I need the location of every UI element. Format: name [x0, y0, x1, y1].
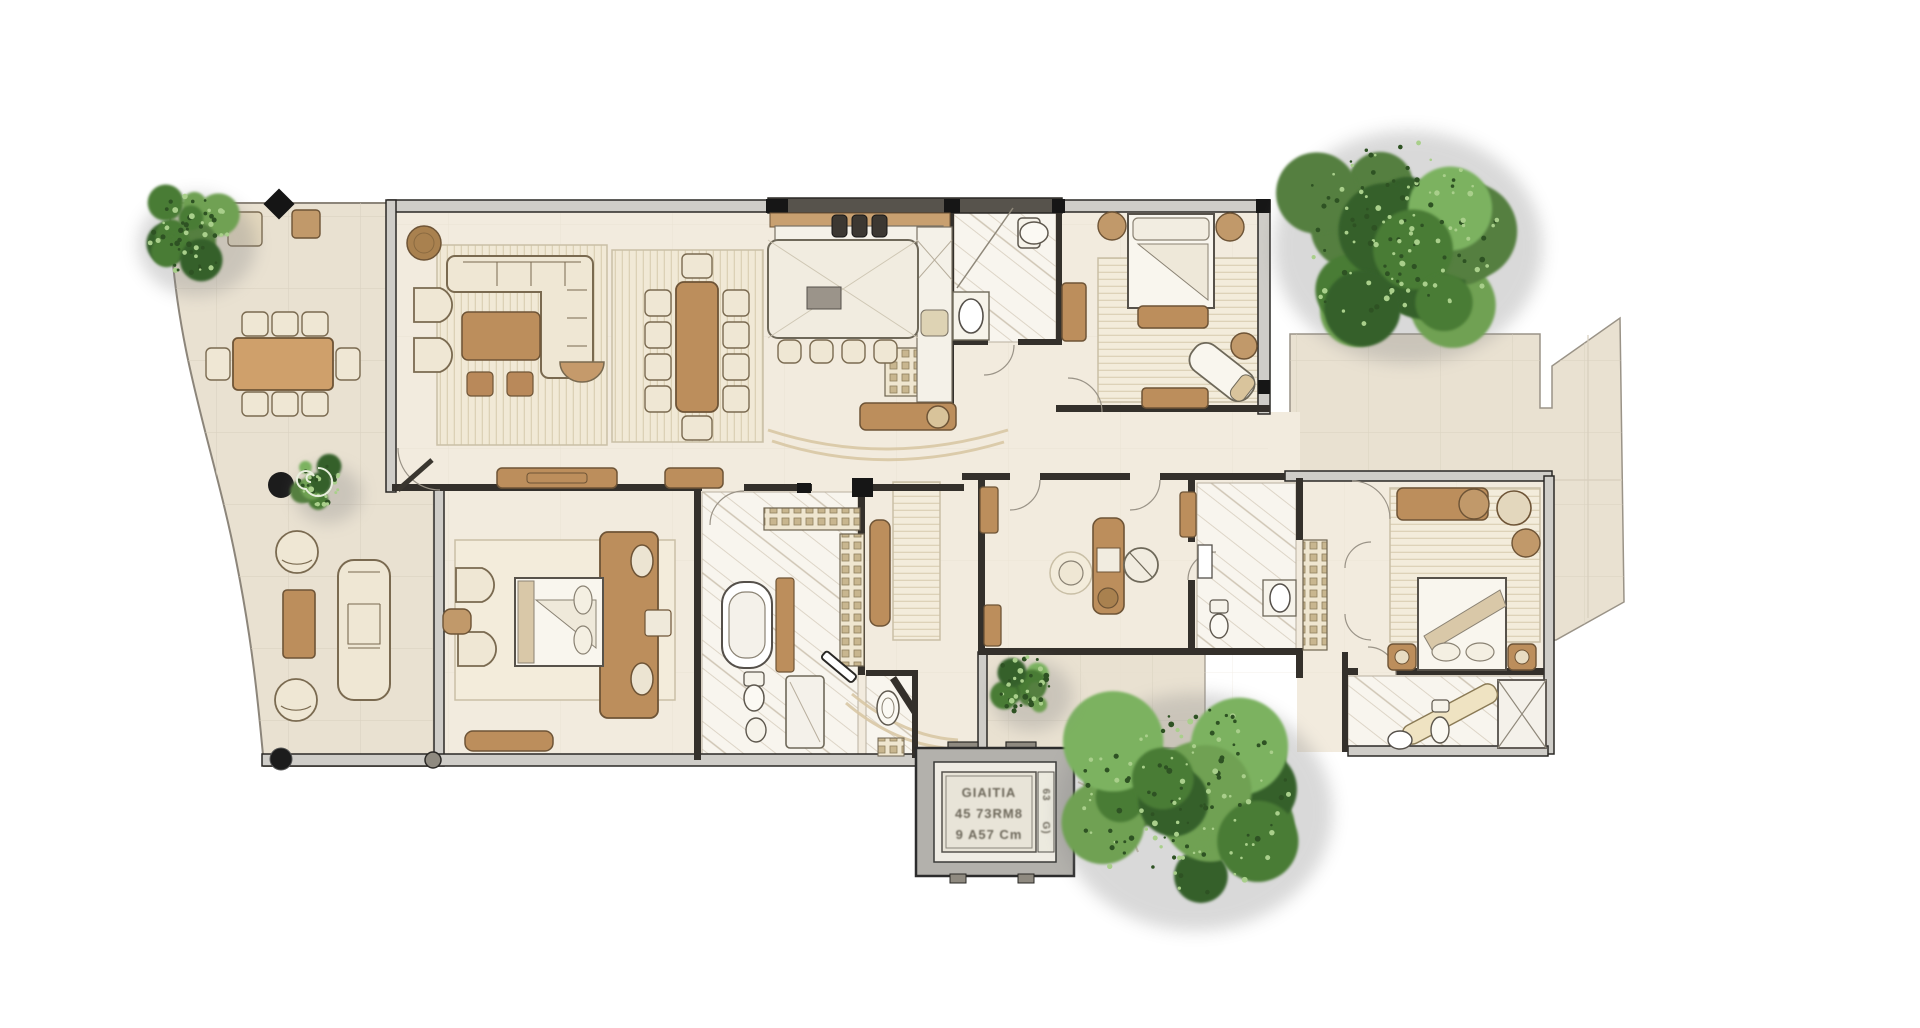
- wall-chunk-3: [1052, 199, 1065, 213]
- chair: [645, 354, 671, 380]
- foliage-dot: [1208, 709, 1211, 712]
- wall-top-kitchen: [768, 198, 1062, 213]
- burner: [872, 215, 887, 237]
- foliage-dot: [169, 199, 173, 203]
- elevator-foot-2: [1018, 874, 1034, 883]
- foliage-dot: [1284, 778, 1287, 781]
- foliage-dot: [1349, 272, 1352, 275]
- foliage-dot: [1442, 255, 1446, 259]
- foliage-dot: [1145, 734, 1148, 737]
- foliage-dot: [1321, 204, 1326, 209]
- chair: [723, 386, 749, 412]
- foliage-dot: [1257, 743, 1261, 747]
- chair: [272, 312, 298, 336]
- foliage-dot: [1350, 160, 1353, 163]
- console-tray: [645, 610, 671, 636]
- foliage-dot: [1114, 754, 1119, 759]
- pedestal-basin: [746, 718, 766, 742]
- foliage-dot: [215, 261, 218, 264]
- foliage-dot: [334, 491, 337, 494]
- foliage-blob: [1132, 748, 1194, 810]
- wall-master-bath-left: [694, 490, 701, 760]
- corner-post-round: [270, 748, 292, 770]
- foliage-dot: [199, 268, 201, 270]
- bed-bench: [1138, 306, 1208, 328]
- foliage-dot: [208, 222, 213, 227]
- foliage-dot: [1375, 205, 1381, 211]
- wardrobe: [1062, 283, 1086, 341]
- foliage-dot: [1164, 836, 1166, 838]
- foliage-dot: [1345, 206, 1349, 210]
- foliage-dot: [1158, 763, 1162, 767]
- pillow-1: [574, 586, 592, 614]
- foliage-dot: [213, 233, 218, 238]
- foliage-dot: [1332, 173, 1335, 176]
- foliage-dot: [1388, 215, 1392, 219]
- foliage-dot: [177, 238, 181, 242]
- foliage-dot: [1443, 174, 1446, 177]
- foliage-dot: [1361, 186, 1364, 189]
- outdoor-sofa: [338, 560, 390, 700]
- foliage-dot: [1022, 694, 1028, 700]
- foliage-dot: [1206, 789, 1211, 794]
- foliage-dot: [1452, 178, 1456, 182]
- foliage-dot: [1217, 775, 1222, 780]
- chair: [242, 392, 268, 416]
- coffee-table: [462, 312, 540, 360]
- rug-pouf: [1059, 561, 1083, 585]
- wall-powder-top: [866, 670, 918, 676]
- desk-blotter: [1097, 548, 1120, 572]
- foliage-dot: [1391, 278, 1393, 280]
- stool: [810, 340, 833, 363]
- foliage-dot: [1210, 731, 1215, 736]
- sideboard-1: [497, 468, 617, 488]
- chair: [723, 290, 749, 316]
- foliage-dot: [1013, 677, 1016, 680]
- foliage-dot: [322, 502, 327, 507]
- foliage-dot: [1192, 751, 1194, 753]
- ottoman-2: [507, 372, 533, 396]
- pouf: [1497, 491, 1531, 525]
- office-cabinet-2: [984, 605, 1001, 646]
- foliage-dot: [1147, 790, 1151, 794]
- foliage-dot: [1265, 855, 1270, 860]
- foliage-dot: [1323, 249, 1326, 252]
- foliage-dot: [336, 488, 339, 491]
- foliage-dot: [1153, 836, 1158, 841]
- foot-bench: [465, 731, 553, 751]
- powder-mat: [878, 738, 904, 756]
- foliage-dot: [1407, 186, 1410, 189]
- title-line-3: 9 A57 Cm: [956, 827, 1023, 842]
- foliage-blob: [180, 239, 223, 282]
- office-cabinet-1: [980, 487, 998, 533]
- foliage-dot: [1459, 168, 1463, 172]
- armchair-2: [414, 338, 452, 372]
- foliage-dot: [1194, 715, 1199, 720]
- foliage-dot: [1168, 715, 1171, 718]
- foliage-dot: [1494, 218, 1499, 223]
- outdoor-dining-table: [233, 338, 333, 390]
- foliage-dot: [1366, 208, 1369, 211]
- foliage-dot: [1388, 237, 1392, 241]
- tree-top-right: [1273, 131, 1542, 363]
- wall-left-upper: [386, 200, 396, 492]
- wall-chunk-6: [797, 483, 811, 493]
- foliage-dot: [207, 209, 211, 213]
- foliage-dot: [1434, 190, 1439, 195]
- chair: [206, 348, 230, 380]
- foliage-dot: [1123, 840, 1126, 843]
- pillow-3: [1432, 643, 1460, 661]
- foliage-dot: [1205, 890, 1210, 895]
- foliage-dot: [1454, 228, 1457, 231]
- foliage-dot: [177, 269, 180, 272]
- elevator-foot-1: [950, 874, 966, 883]
- pouf: [1098, 212, 1126, 240]
- pouf-table: [443, 609, 471, 634]
- foliage-dot: [1178, 797, 1181, 800]
- foliage-dot: [1286, 792, 1291, 797]
- chair: [272, 392, 298, 416]
- foliage-dot: [1364, 214, 1369, 219]
- foliage-dot: [1466, 237, 1470, 241]
- foliage-dot: [1207, 782, 1211, 786]
- console-lamp: [927, 406, 949, 428]
- foliage-dot: [1198, 850, 1201, 853]
- foliage-dot: [1048, 685, 1050, 687]
- foliage-dot: [1436, 238, 1441, 243]
- foliage-dot: [184, 222, 189, 227]
- foliage-dot: [1110, 845, 1115, 850]
- ottoman-1: [467, 372, 493, 396]
- foliage-dot: [1175, 728, 1179, 732]
- foliage-dot: [1012, 708, 1017, 713]
- foliage-dot: [1115, 841, 1118, 844]
- foliage-dot: [1471, 185, 1474, 188]
- wall-suite-left-b: [1296, 648, 1303, 678]
- foliage-dot: [1353, 241, 1356, 244]
- foliage-dot: [307, 484, 310, 487]
- foliage-dot: [1238, 803, 1242, 807]
- foliage-dot: [1152, 820, 1158, 826]
- foliage-dot: [1452, 191, 1455, 194]
- foliage-dot: [1043, 673, 1049, 679]
- chair: [645, 290, 671, 316]
- foliage-dot: [1233, 720, 1237, 724]
- foliage-dot: [178, 248, 181, 251]
- foliage-dot: [1220, 755, 1225, 760]
- foliage-dot: [182, 250, 187, 255]
- foliage-dot: [1386, 183, 1390, 187]
- wall-powder-right: [912, 670, 918, 758]
- foliage-dot: [1359, 190, 1364, 195]
- foliage-dot: [1414, 239, 1420, 245]
- foliage-dot: [1013, 658, 1018, 663]
- door-jamb-terrace: [1258, 380, 1270, 394]
- foliage-dot: [1179, 808, 1182, 811]
- foliage-dot: [1448, 298, 1452, 302]
- foliage-dot: [1460, 218, 1465, 223]
- foliage-dot: [1398, 272, 1402, 276]
- foliage-dot: [1020, 704, 1023, 707]
- foliage-dot: [1084, 828, 1088, 832]
- chair: [645, 322, 671, 348]
- foliage-dot: [1090, 793, 1093, 796]
- wall-chunk-5: [852, 478, 873, 497]
- foliage-dot: [1491, 224, 1495, 228]
- foliage-dot: [1083, 769, 1087, 773]
- tree-top-left: [138, 185, 256, 296]
- lamp-2: [1515, 650, 1529, 664]
- side-mark-2: G): [1040, 821, 1051, 834]
- foliage-dot: [1396, 280, 1399, 283]
- foliage-dot: [1203, 827, 1206, 830]
- foliage-dot: [1392, 252, 1395, 255]
- side-mark-1: 63: [1040, 788, 1051, 801]
- stool: [874, 340, 897, 363]
- burner: [852, 215, 867, 237]
- foliage-dot: [1441, 268, 1445, 272]
- foliage-dot: [1342, 309, 1345, 312]
- pillow-4: [1466, 643, 1494, 661]
- foliage-dot: [1180, 779, 1185, 784]
- foliage-dot: [1371, 170, 1376, 175]
- wall-office-bottom: [985, 648, 1300, 655]
- foliage-dot: [1255, 836, 1261, 842]
- chair: [682, 416, 712, 440]
- foliage-dot: [1481, 236, 1486, 241]
- foliage-dot: [1260, 779, 1262, 781]
- foliage-dot: [186, 241, 192, 247]
- foliage-dot: [1368, 153, 1373, 158]
- foliage-dot: [1403, 303, 1408, 308]
- foliage-dot: [1089, 757, 1093, 761]
- foliage-dot: [1233, 819, 1236, 822]
- foliage-dot: [1007, 682, 1011, 686]
- wall-living-master-c: [872, 484, 964, 491]
- toilet-bowl-2: [744, 685, 764, 711]
- foliage-dot: [1168, 721, 1174, 727]
- foliage-dot: [1029, 674, 1033, 678]
- foliage-dot: [1193, 852, 1195, 854]
- foliage-dot: [1408, 249, 1412, 253]
- foliage-dot: [1123, 851, 1126, 854]
- foliage-dot: [1173, 871, 1177, 875]
- outdoor-coffee-table: [283, 590, 315, 658]
- foliage-dot: [1414, 177, 1419, 182]
- foliage-dot: [316, 502, 320, 506]
- foliage-dot: [1139, 738, 1142, 741]
- foliage-dot: [1270, 750, 1274, 754]
- foliage-dot: [1406, 288, 1410, 292]
- foliage-dot: [1178, 873, 1183, 878]
- foliage-dot: [218, 208, 224, 214]
- armchair-1: [414, 288, 452, 322]
- round-chair-1: [276, 531, 318, 573]
- foliage-dot: [1233, 873, 1236, 876]
- bathtub-inner: [729, 592, 765, 658]
- foliage-dot: [151, 230, 156, 235]
- foliage-dot: [1311, 184, 1314, 187]
- foliage-dot: [1479, 284, 1484, 289]
- wall-bottom-band: [262, 754, 918, 766]
- toilet-bowl: [1020, 222, 1048, 244]
- foliage-dot: [1177, 856, 1182, 861]
- foliage-dot: [1389, 288, 1394, 293]
- foliage-dot: [1026, 690, 1029, 693]
- foliage-dot: [1409, 226, 1414, 231]
- foliage-dot: [1172, 801, 1176, 805]
- foliage-dot: [202, 232, 207, 237]
- foliage-dot: [194, 254, 198, 258]
- foliage-dot: [199, 224, 203, 228]
- foliage-dot: [1242, 774, 1246, 778]
- foliage-dot: [1240, 857, 1243, 860]
- foliage-dot: [1174, 832, 1179, 837]
- foliage-dot: [1345, 231, 1349, 235]
- foliage-dot: [204, 199, 207, 202]
- foliage-dot: [1415, 277, 1420, 282]
- foliage-dot: [1420, 224, 1424, 228]
- closet-shelf-column: [840, 534, 864, 666]
- foliage-dot: [203, 212, 207, 216]
- foliage-dot: [1405, 166, 1409, 170]
- foliage-dot: [1013, 704, 1017, 708]
- foliage-dot: [1009, 698, 1015, 704]
- burner: [832, 215, 847, 237]
- wall-chunk-1: [766, 199, 788, 213]
- foliage-dot: [182, 194, 188, 200]
- foliage-dot: [303, 490, 306, 493]
- foliage-dot: [1400, 261, 1405, 266]
- powder-room: [877, 691, 899, 725]
- foliage-dot: [1216, 737, 1221, 742]
- toilet-bowl-4: [1210, 614, 1228, 638]
- foliage-dot: [1185, 763, 1187, 765]
- foliage-dot: [1479, 257, 1485, 263]
- toilet-bowl-5: [1431, 717, 1449, 743]
- foliage-dot: [1139, 808, 1144, 813]
- wall-chunk-4: [1256, 199, 1270, 213]
- wall-chunk-2: [944, 199, 960, 213]
- foliage-dot: [1467, 191, 1473, 197]
- foliage-dot: [1203, 805, 1208, 810]
- foliage-dot: [1365, 195, 1368, 198]
- foliage-dot: [165, 207, 169, 211]
- foliage-dot: [1399, 282, 1403, 286]
- foliage-dot: [1350, 218, 1354, 222]
- foliage-dot: [1423, 281, 1428, 286]
- foliage-dot: [1448, 226, 1452, 230]
- foliage-dot: [1127, 776, 1131, 780]
- foliage-dot: [1463, 259, 1467, 263]
- foliage-dot: [1236, 729, 1240, 733]
- foliage-blob: [1324, 270, 1401, 347]
- foliage-dot: [1090, 831, 1093, 834]
- round-side-table: [407, 226, 441, 260]
- foliage-dot: [1382, 221, 1385, 224]
- wall-post: [425, 752, 441, 768]
- foliage-dot: [1176, 821, 1180, 825]
- foliage-dot: [1105, 768, 1110, 773]
- foliage-dot: [1398, 145, 1403, 150]
- foliage-dot: [1225, 714, 1228, 717]
- foliage-dot: [1409, 231, 1413, 235]
- foliage-dot: [1397, 239, 1401, 243]
- foliage-dot: [1279, 795, 1284, 800]
- foliage-dot: [201, 246, 205, 250]
- wash-basin-3: [1388, 731, 1412, 749]
- lamp-1: [1395, 650, 1409, 664]
- wall-bath-br-left: [1342, 652, 1348, 752]
- foliage-dot: [1216, 721, 1220, 725]
- foliage-dot: [1427, 294, 1430, 297]
- foliage-dot: [1335, 198, 1340, 203]
- foliage-dot: [1342, 270, 1348, 276]
- bath-door-panel: [1198, 545, 1212, 578]
- foliage-dot: [1201, 852, 1206, 857]
- foliage-dot: [1324, 300, 1327, 303]
- foliage-dot: [1312, 255, 1316, 259]
- foliage-dot: [191, 200, 195, 204]
- foliage-dot: [1383, 264, 1386, 267]
- bench-2: [1142, 388, 1208, 408]
- foliage-dot: [1114, 778, 1119, 783]
- foliage-dot: [1252, 843, 1255, 846]
- foliage-dot: [172, 207, 178, 213]
- foliage-dot: [1172, 855, 1176, 859]
- foyer-runner: [893, 482, 940, 640]
- armchair-3: [456, 568, 494, 602]
- foliage-dot: [1000, 692, 1003, 695]
- foliage-dot: [1429, 191, 1431, 193]
- foliage-dot: [1085, 783, 1090, 788]
- foliage-dot: [178, 228, 183, 233]
- foliage-dot: [1161, 729, 1165, 733]
- foliage-dot: [1108, 829, 1112, 833]
- side-table-round: [1231, 333, 1257, 359]
- wall-bath-bottom-b: [1018, 339, 1060, 345]
- chair: [336, 348, 360, 380]
- armchair-4: [458, 632, 496, 666]
- pouf: [1459, 489, 1489, 519]
- foliage-dot: [1036, 658, 1039, 661]
- toilet-tank-5: [1432, 700, 1449, 712]
- foliage-dot: [1229, 851, 1232, 854]
- console-bowl-1: [631, 545, 653, 577]
- foliage-dot: [1374, 154, 1377, 157]
- foliage-dot: [1412, 264, 1417, 269]
- foliage-dot: [189, 213, 195, 219]
- foliage-dot: [1440, 220, 1444, 224]
- foliage-dot: [162, 222, 165, 225]
- foliage-dot: [1152, 792, 1157, 797]
- foliage-dot: [1485, 264, 1489, 268]
- foliage-dot: [1369, 308, 1374, 313]
- foliage-dot: [1475, 267, 1480, 272]
- foliage-dot: [1151, 812, 1155, 816]
- foliage-dot: [1233, 743, 1236, 746]
- plant-pot-black: [268, 472, 294, 498]
- floor-plan-canvas: GIAITIA 45 73RM8 9 A57 Cm 63 G): [0, 0, 1920, 1028]
- foliage-dot: [1229, 795, 1232, 798]
- foliage-dot: [1017, 668, 1023, 674]
- foliage-dot: [1270, 824, 1272, 826]
- foliage-dot: [1451, 184, 1455, 188]
- wall-suite-top: [1285, 471, 1552, 481]
